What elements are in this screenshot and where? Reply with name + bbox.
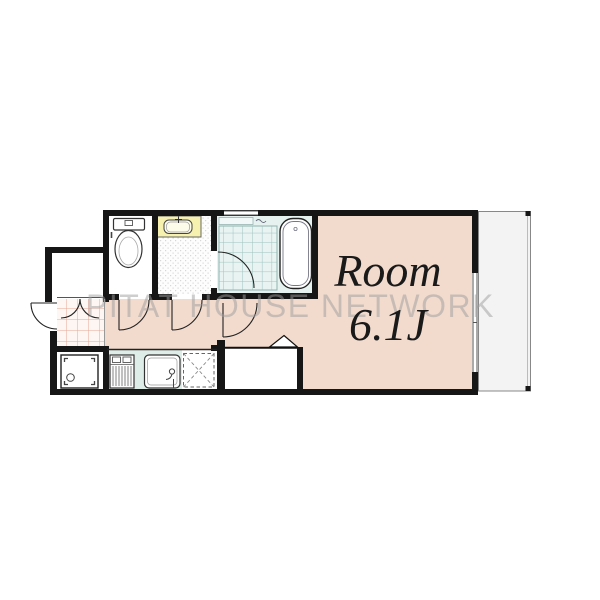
window-bathroom: [224, 211, 258, 216]
bath-counter: [219, 218, 253, 225]
bathtub-icon: [280, 219, 312, 289]
washing-machine-pan-icon: [61, 355, 98, 388]
fridge-space-marker: [184, 354, 215, 388]
stove-icon: [110, 355, 134, 388]
room-label-size: 6.1J: [310, 296, 466, 354]
room-label-name: Room: [310, 246, 466, 296]
floorplan-canvas: PITAT HOUSE NETWORK Room 6.1J: [0, 0, 600, 600]
balcony-corner-mark-bottom: [526, 386, 531, 391]
bathroom-fixtures: [219, 218, 312, 291]
vanity-sink-icon: [157, 216, 201, 237]
kitchen-fixtures: [110, 354, 214, 389]
entrance-door-arc: [31, 303, 57, 329]
kitchen-sink-icon: [145, 355, 181, 388]
closet-floor: [225, 347, 297, 389]
bath-tile-grid: [219, 226, 277, 290]
balcony-corner-mark-top: [526, 211, 531, 216]
room-label: Room 6.1J: [310, 246, 466, 354]
